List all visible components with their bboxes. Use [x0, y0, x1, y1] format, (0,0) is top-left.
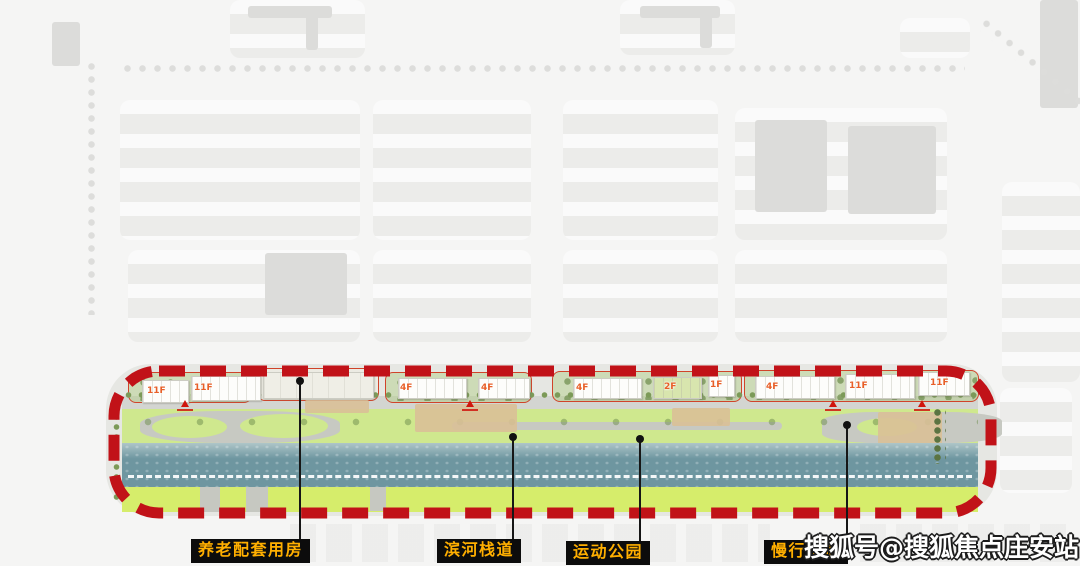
- bg-faded-row: [290, 524, 770, 562]
- site-plan: 11F11F4F4F4F2F1F4F11F11F 养老配套用房滨河栈道运动公园慢…: [0, 0, 1080, 566]
- callout-leader-line: [299, 381, 301, 539]
- bg-city-block: [1000, 388, 1072, 493]
- callout-dot: [636, 435, 644, 443]
- bg-building: [265, 253, 347, 315]
- bg-city-block: [563, 250, 718, 342]
- bg-building: [52, 22, 80, 66]
- bg-building: [700, 10, 712, 48]
- bg-city-block: [1002, 182, 1080, 382]
- bg-building: [306, 6, 318, 50]
- legend-label-2: 滨河栈道: [437, 539, 521, 563]
- bg-city-block: [563, 100, 718, 240]
- bg-city-block: [900, 18, 970, 58]
- bg-building: [755, 120, 827, 212]
- bg-building: [248, 6, 332, 18]
- bg-building: [848, 126, 936, 214]
- bg-city-block: [120, 100, 360, 240]
- legend-label-1: 养老配套用房: [191, 539, 310, 563]
- legend-label-3: 运动公园: [566, 541, 650, 565]
- bg-city-block: [373, 100, 531, 240]
- callout-leader-line: [512, 437, 514, 539]
- bg-street-trees: [84, 60, 100, 315]
- callout-dot: [509, 433, 517, 441]
- callout-dot: [296, 377, 304, 385]
- callout-leader-line: [639, 439, 641, 541]
- bg-city-block: [735, 250, 947, 342]
- callout-dot: [843, 421, 851, 429]
- watermark-text: 搜狐号@搜狐焦点庄安站: [804, 528, 1079, 564]
- callout-leader-line: [846, 425, 848, 540]
- bg-city-block: [373, 250, 531, 342]
- red-dashed-boundary: [100, 358, 1003, 524]
- bg-street-trees: [120, 62, 965, 78]
